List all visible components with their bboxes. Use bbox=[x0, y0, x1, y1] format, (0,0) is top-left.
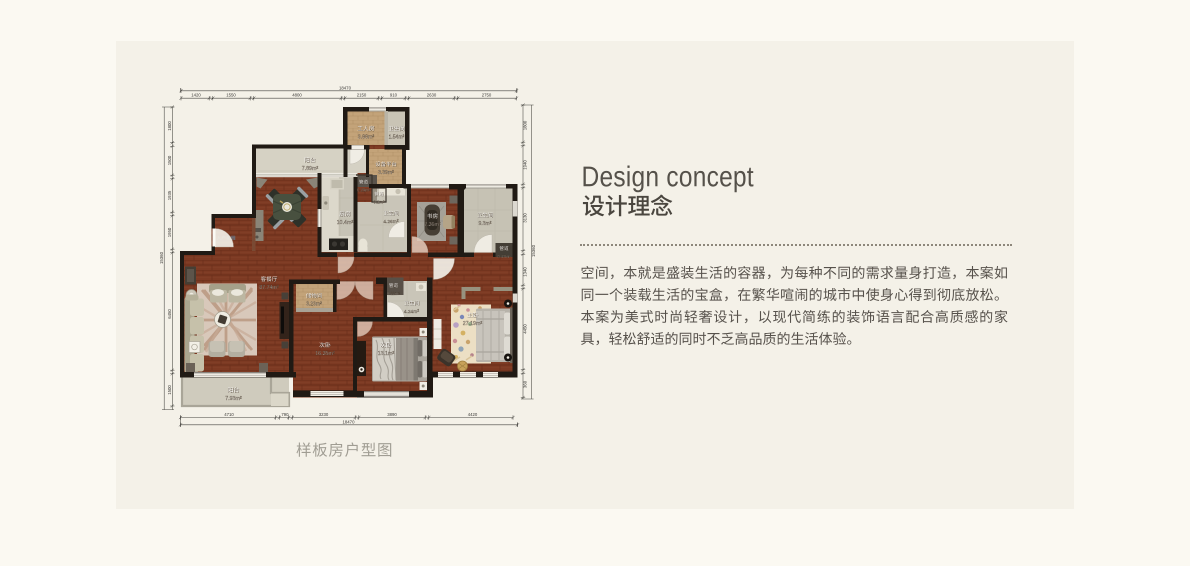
svg-text:13.1m2: 13.1m2 bbox=[378, 351, 395, 358]
svg-text:2630: 2630 bbox=[427, 93, 437, 98]
svg-text:15360: 15360 bbox=[159, 251, 164, 264]
svg-text:2150: 2150 bbox=[357, 93, 367, 98]
svg-text:3130: 3130 bbox=[522, 213, 527, 223]
svg-text:790: 790 bbox=[281, 412, 289, 417]
svg-text:1.54m2: 1.54m2 bbox=[389, 134, 405, 141]
svg-text:0.26m2: 0.26m2 bbox=[357, 187, 371, 192]
svg-text:910: 910 bbox=[390, 93, 398, 98]
svg-text:1340: 1340 bbox=[522, 267, 527, 277]
svg-text:1800: 1800 bbox=[522, 120, 527, 130]
svg-text:4800: 4800 bbox=[292, 93, 302, 98]
svg-text:0.17m2: 0.17m2 bbox=[497, 254, 511, 259]
svg-text:1935: 1935 bbox=[167, 190, 172, 200]
svg-text:4.24m2: 4.24m2 bbox=[404, 309, 419, 316]
svg-text:3.23m2: 3.23m2 bbox=[306, 301, 322, 308]
svg-text:4.26m2: 4.26m2 bbox=[383, 219, 398, 226]
svg-text:6450: 6450 bbox=[167, 309, 172, 319]
svg-text:18470: 18470 bbox=[339, 85, 352, 90]
svg-text:1950: 1950 bbox=[167, 227, 172, 237]
svg-text:15360: 15360 bbox=[531, 244, 536, 257]
svg-text:1550: 1550 bbox=[226, 93, 236, 98]
svg-text:10.4m2: 10.4m2 bbox=[337, 220, 354, 227]
svg-text:1940: 1940 bbox=[522, 160, 527, 170]
svg-text:7.93m2: 7.93m2 bbox=[225, 396, 242, 403]
svg-text:18470: 18470 bbox=[343, 419, 356, 424]
svg-text:7.36m2: 7.36m2 bbox=[424, 222, 440, 229]
svg-text:360: 360 bbox=[522, 380, 527, 388]
svg-text:2750: 2750 bbox=[482, 93, 492, 98]
svg-text:3890: 3890 bbox=[387, 412, 397, 417]
svg-text:3.88m2: 3.88m2 bbox=[358, 134, 375, 141]
svg-text:3230: 3230 bbox=[319, 412, 329, 417]
svg-text:4420: 4420 bbox=[468, 412, 478, 417]
svg-text:1500: 1500 bbox=[167, 385, 172, 395]
svg-text:4710: 4710 bbox=[224, 412, 234, 417]
svg-text:16.35m2: 16.35m2 bbox=[315, 351, 335, 358]
svg-text:7.89m2: 7.89m2 bbox=[302, 166, 319, 173]
svg-text:27.19m2: 27.19m2 bbox=[463, 321, 483, 328]
svg-text:1420: 1420 bbox=[191, 93, 201, 98]
svg-text:4450: 4450 bbox=[522, 324, 527, 334]
svg-text:3.39m2: 3.39m2 bbox=[378, 170, 394, 177]
svg-text:1800: 1800 bbox=[167, 121, 172, 131]
svg-text:1500: 1500 bbox=[167, 155, 172, 165]
svg-text:87.74m2: 87.74m2 bbox=[259, 285, 278, 292]
